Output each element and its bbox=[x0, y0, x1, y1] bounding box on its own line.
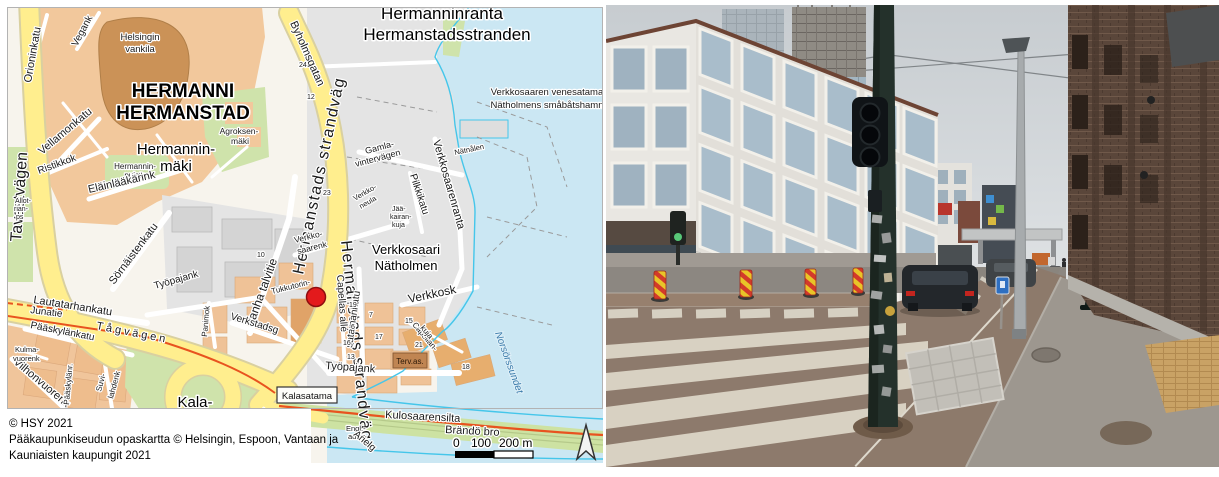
house-number: 18 bbox=[462, 364, 470, 371]
attribution-line-3: Kauniaisten kaupungit 2021 bbox=[9, 450, 151, 462]
map-label-natholmen: Nätholmen bbox=[375, 258, 438, 273]
traffic-light-head bbox=[852, 97, 888, 167]
map-label-allotrianps-1: Allot- bbox=[15, 198, 32, 205]
scale-200m: 200 m bbox=[499, 436, 532, 450]
map-tervas-label: Terv.as. bbox=[393, 353, 427, 368]
pedestrian-button-box bbox=[868, 190, 882, 212]
map-label-jaakairankuja-3: kuja bbox=[392, 222, 405, 229]
metal-panel bbox=[1166, 5, 1219, 67]
map-label-hermanstad: HERMANSTAD bbox=[116, 103, 250, 124]
map-attribution: © HSY 2021 Pääkaupunkiseudun opaskartta … bbox=[7, 409, 339, 463]
screenshot-canvas: Hermanninranta Hermanstadsstranden HERMA… bbox=[0, 0, 1219, 477]
lamp-head bbox=[1002, 37, 1030, 53]
house-number: 17 bbox=[375, 334, 383, 341]
manhole-cover-2 bbox=[1100, 421, 1152, 445]
location-marker-dot bbox=[307, 288, 326, 307]
house-number: 12 bbox=[307, 94, 315, 101]
house-number: 19 bbox=[349, 302, 357, 309]
wall-lamp-icon bbox=[1140, 171, 1148, 179]
taillight bbox=[965, 291, 974, 296]
map-label-jaakairankuja-2: kairan- bbox=[390, 214, 412, 221]
elevated-bridge bbox=[962, 229, 1062, 240]
attribution-line-2: Pääkaupunkiseudun opaskartta © Helsingin… bbox=[9, 434, 339, 446]
house-number: 10 bbox=[257, 252, 265, 259]
scale-100: 100 bbox=[471, 436, 491, 450]
house-number: 13 bbox=[347, 354, 355, 361]
red-storefront-sign bbox=[938, 203, 952, 215]
map-label-agroksenmaki-1: Agroksen- bbox=[220, 126, 259, 136]
manhole-cover bbox=[1032, 348, 1060, 362]
house-number: 24 bbox=[299, 62, 307, 69]
map-kalasatama-station-label: Kalasatama bbox=[277, 387, 337, 403]
taillight bbox=[906, 291, 915, 296]
map-label-vankila-2: vankila bbox=[125, 44, 155, 55]
house-number: 16 bbox=[343, 340, 351, 347]
map-label-kulmavuorenk-1: Kulma- bbox=[15, 345, 39, 354]
street-photo-panel bbox=[606, 5, 1219, 467]
map-label-hermanninranta: Hermanninranta bbox=[381, 7, 503, 23]
map-label-allotrianps-2: rian- bbox=[14, 206, 29, 213]
signal-lens bbox=[861, 104, 880, 123]
map-label-hermanninmaki-2: mäki bbox=[160, 158, 192, 175]
house-number: 6 bbox=[351, 324, 355, 331]
map-label-jaakairankuja-1: Jää- bbox=[392, 206, 406, 213]
green-light bbox=[674, 233, 682, 241]
map-label-kulmavuorenk-2: vuorenk bbox=[13, 354, 40, 363]
map-label-allotrianps-3: ps bbox=[16, 214, 24, 221]
house-number: 21 bbox=[415, 342, 423, 349]
map-label-hermanninmaki-1: Hermannin- bbox=[137, 141, 215, 158]
house-number: 23 bbox=[323, 190, 331, 197]
map-label-kalasatama-box: Kalasatama bbox=[282, 391, 333, 402]
wall-lamp-icon bbox=[1147, 96, 1155, 104]
house-number: 15 bbox=[405, 318, 413, 325]
map-label-verkkosaari: Verkkosaari bbox=[372, 242, 440, 257]
opas-map-panel: Hermanninranta Hermanstadsstranden HERMA… bbox=[7, 7, 603, 463]
car-suv-rear bbox=[900, 265, 980, 317]
map-label-agroksenmaki-2: mäki bbox=[231, 136, 249, 146]
attribution-line-1: © HSY 2021 bbox=[9, 418, 73, 430]
signal-lens bbox=[861, 148, 880, 167]
scale-0: 0 bbox=[453, 436, 460, 450]
map-label-tervas: Terv.as. bbox=[396, 357, 423, 366]
house-number: 7 bbox=[369, 312, 373, 319]
map-label-vankila-1: Helsingin bbox=[120, 32, 159, 43]
map-label-hermanstadsstranden: Hermanstadsstranden bbox=[363, 25, 530, 44]
map-label-hermanni: HERMANNI bbox=[132, 81, 234, 102]
yellow-sticker bbox=[885, 306, 895, 316]
signal-lens bbox=[861, 126, 880, 145]
car-dark-grey bbox=[986, 259, 1036, 287]
map-label-venesatama-2: Nätholmens småbåtshamn bbox=[491, 100, 604, 111]
map-label-venesatama-1: Verkkosaaren venesatama bbox=[491, 87, 603, 98]
